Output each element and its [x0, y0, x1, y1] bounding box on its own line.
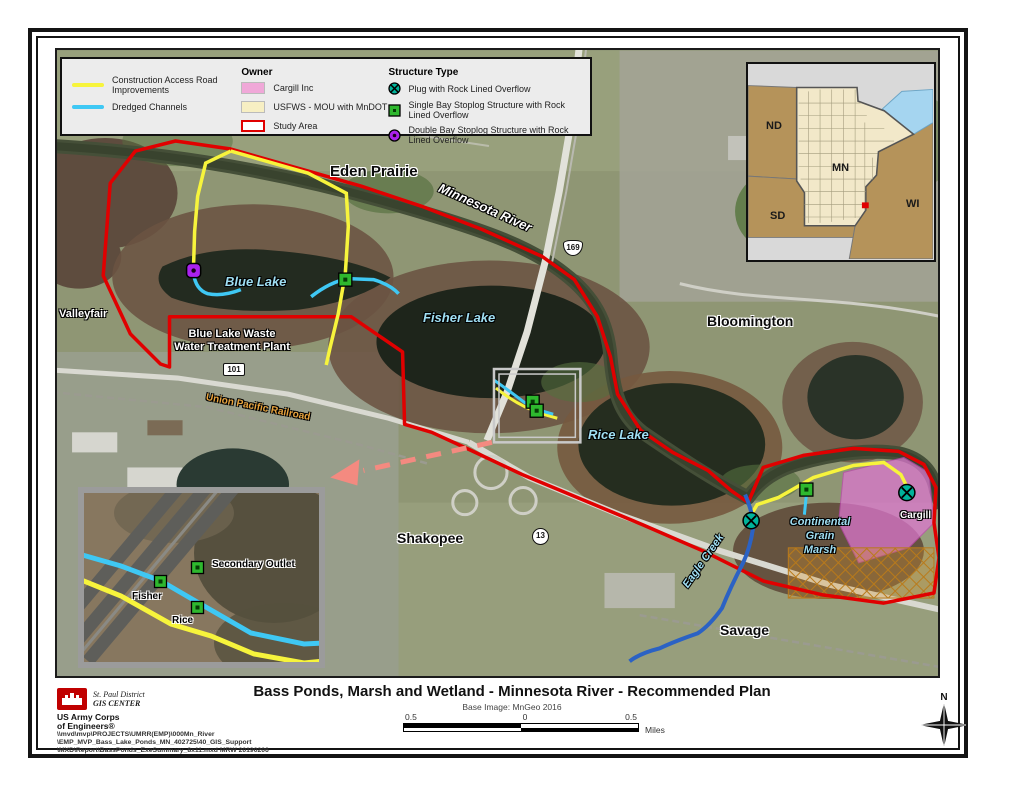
- legend-structure-group: Structure Type Plug with Rock Lined Over…: [388, 67, 582, 128]
- double-bay-stoplog-marker: [187, 264, 201, 278]
- map-title: Bass Ponds, Marsh and Wetland - Minnesot…: [200, 683, 824, 700]
- cargill-swatch: [241, 82, 265, 94]
- legend-label: Double Bay Stoplog Structure with Rock L…: [408, 125, 582, 145]
- state-label-mn: MN: [832, 162, 849, 174]
- gis-center-name: GIS CENTER: [93, 699, 145, 708]
- project-location-marker: [862, 202, 869, 208]
- map-document-page: Eden Prairie Minnesota River Blue Lake F…: [0, 0, 1024, 791]
- legend-label: Plug with Rock Lined Overflow: [408, 84, 530, 94]
- label-fisher: Fisher: [132, 591, 162, 602]
- hwy-101-shield: 101: [223, 363, 245, 376]
- file-path-line: \\mvd\mvp\PROJECTS\UMRR(EMP)\000Mn_River: [57, 731, 269, 739]
- file-path-line: \MXD\Report\BassPonds_ExeSummary_8x11.mx…: [57, 747, 269, 755]
- usace-castle-logo: [57, 688, 87, 710]
- file-path-line: \EMP_MVP_Bass_Lake_Ponds_MN_402725\40_GI…: [57, 739, 269, 747]
- scale-tick-mid: 0: [523, 712, 528, 722]
- legend-label: USFWS - MOU with MnDOT: [273, 102, 387, 112]
- scale-unit: Miles: [645, 725, 665, 735]
- legend: Construction Access Road Improvements Dr…: [60, 57, 592, 136]
- outlet-detail-inset: Secondary Outlet Fisher Rice: [78, 487, 325, 668]
- minnesota-locator-inset: ND MN SD WI: [746, 62, 936, 262]
- label-rice: Rice: [172, 615, 193, 626]
- single-bay-stoplog-icon: [388, 104, 401, 117]
- base-image-credit: Base Image: MnGeo 2016: [300, 702, 724, 712]
- compass-rose-icon: [920, 703, 968, 747]
- scale-bar-graphic: [403, 723, 639, 732]
- dredged-channel-swatch: [72, 105, 104, 109]
- legend-label: Study Area: [273, 121, 317, 131]
- hwy-13-shield: 13: [532, 528, 549, 545]
- legend-label: Dredged Channels: [112, 102, 187, 112]
- structure-type-title: Structure Type: [388, 67, 582, 78]
- double-bay-stoplog-icon: [388, 129, 401, 142]
- scale-tick-left: 0.5: [405, 712, 417, 722]
- state-label-sd: SD: [770, 210, 785, 222]
- north-arrow: N: [920, 692, 968, 752]
- legend-label: Cargill Inc: [273, 83, 313, 93]
- label-secondary-outlet: Secondary Outlet: [212, 559, 295, 570]
- construction-road-swatch: [72, 83, 104, 87]
- detail-inset-map: [84, 493, 319, 662]
- usfws-swatch: [241, 101, 265, 113]
- plug-icon: [388, 82, 401, 95]
- state-label-nd: ND: [766, 120, 782, 132]
- north-label: N: [920, 692, 968, 703]
- legend-line-items: Construction Access Road Improvements Dr…: [72, 67, 241, 128]
- legend-label: Construction Access Road Improvements: [112, 75, 241, 95]
- district-name: St. Paul District: [93, 690, 145, 699]
- study-area-swatch: [241, 120, 265, 132]
- scale-tick-right: 0.5: [625, 712, 637, 722]
- scale-bar: 0.5 0 0.5 Miles: [403, 712, 653, 732]
- file-path-block: \\mvd\mvp\PROJECTS\UMRR(EMP)\000Mn_River…: [57, 731, 269, 755]
- corps-line2: of Engineers®: [57, 722, 145, 731]
- owner-title: Owner: [241, 67, 388, 78]
- legend-label: Single Bay Stoplog Structure with Rock L…: [408, 100, 582, 120]
- legend-owner-group: Owner Cargill Inc USFWS - MOU with MnDOT…: [241, 67, 388, 128]
- agency-block: St. Paul District GIS CENTER US Army Cor…: [57, 688, 145, 731]
- state-label-wi: WI: [906, 198, 919, 210]
